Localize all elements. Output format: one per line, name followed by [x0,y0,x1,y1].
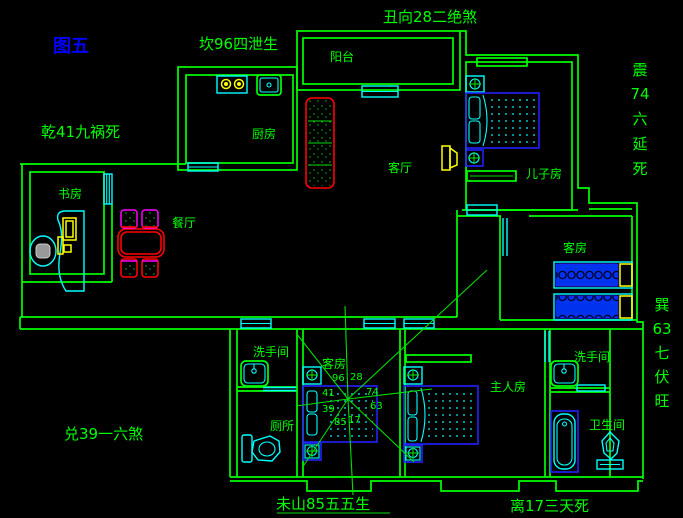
door-guest-room-right [503,218,507,256]
dining-chair-icon [121,210,137,228]
tv-icon [442,146,457,170]
annotation-southeast-char: 伏 [654,368,669,386]
annotation-southeast-char: 巽 [654,296,669,314]
shelf-icon [467,171,516,181]
nightstand-icon [303,443,321,460]
study-chair-icon [30,236,56,266]
room-label-study: 书房 [58,186,82,201]
room-label-guest-room-right: 客房 [563,240,587,255]
window-sons-room [467,205,497,215]
nightstand-icon [404,367,422,384]
toilet-icon [242,435,280,462]
room-label-washroom-left: 洗手间 [253,345,289,359]
compass-number-85: 85 [334,417,347,428]
dining-table-icon [118,229,164,257]
room-label-kitchen: 厨房 [252,126,276,141]
room-label-toilet: 厕所 [270,419,294,433]
door-toilet-sill [263,388,296,391]
annotation-south: 离17三天死 [510,497,589,515]
sofa-icon [306,98,334,188]
compass-number-17: 17 [348,415,361,426]
annotation-north: 坎96四泄生 [199,35,278,53]
twin-bed-icon [554,262,632,288]
annotation-east-char: 震 [632,61,647,79]
annotation-southeast-char: 七 [654,344,669,362]
figure-title: 图五 [53,36,89,57]
nightstand-icon [466,150,483,166]
stove-icon [217,76,247,93]
compass-number-63: 63 [370,401,383,412]
annotation-east-char: 死 [632,160,647,178]
annotation-east-char: 延 [632,135,647,153]
annotation-east-char: 六 [632,110,647,128]
room-label-bathroom: 卫生间 [589,418,625,432]
compass-number-41: 41 [322,388,335,399]
room-label-master-bedroom: 主人房 [490,379,526,394]
bed-sons-icon [466,93,539,148]
dining-chair-icon [142,210,158,228]
dining-chair-icon [142,259,158,277]
room-label-washroom-right: 洗手间 [574,350,610,364]
compass-rays [296,270,487,495]
annotation-south-mountain: 未山85五五生 [276,495,370,513]
window-corridor-1 [241,319,271,328]
room-label-dining-room: 餐厅 [172,215,196,230]
windows [188,86,605,391]
sink-icon [551,361,578,386]
bathtub-icon [551,411,578,472]
room-label-guest-room-middle: 客房 [322,356,346,371]
room-label-living-room: 客厅 [388,160,412,175]
window-corridor-2 [364,319,395,328]
compass-number-74: 74 [366,387,379,398]
nightstand-icon [303,367,321,384]
annotation-southeast-char: 旺 [654,392,669,410]
door-study [104,174,112,204]
annotation-east-vertical: 震 74 六 延 死 [630,61,649,178]
shelf-icon [406,355,471,362]
room-label-sons-room: 儿子房 [526,166,562,181]
compass-number-96: 96 [332,373,345,384]
compass-number-28: 28 [350,372,363,383]
floorplan-drawing: 96 28 41 74 39 63 85 17 阳台 厨房 客厅 儿子房 书房 … [0,0,683,518]
room-label-balcony: 阳台 [330,49,354,64]
annotation-west: 兑39一六煞 [64,425,143,443]
annotation-top: 丑向28二绝煞 [383,8,477,26]
floorplan-canvas: 96 28 41 74 39 63 85 17 阳台 厨房 客厅 儿子房 书房 … [0,0,683,518]
bed-master-icon [404,386,478,444]
window-balcony [362,86,398,97]
compass-number-39: 39 [322,404,335,415]
annotation-southeast-char: 63 [652,320,671,338]
sink-icon [241,361,268,386]
annotation-northwest: 乾41九祸死 [41,123,120,141]
annotation-east-char: 74 [630,85,649,103]
kitchen-sink-icon [257,75,281,95]
twin-bed-icon [554,294,632,320]
annotation-southeast-vertical: 巽 63 七 伏 旺 [652,296,671,410]
door-washroom-right [545,331,549,362]
nightstand-icon [466,76,484,92]
compass-rose: 96 28 41 74 39 63 85 17 [296,270,487,495]
nightstand-icon [404,445,422,462]
dining-chair-icon [121,259,137,277]
